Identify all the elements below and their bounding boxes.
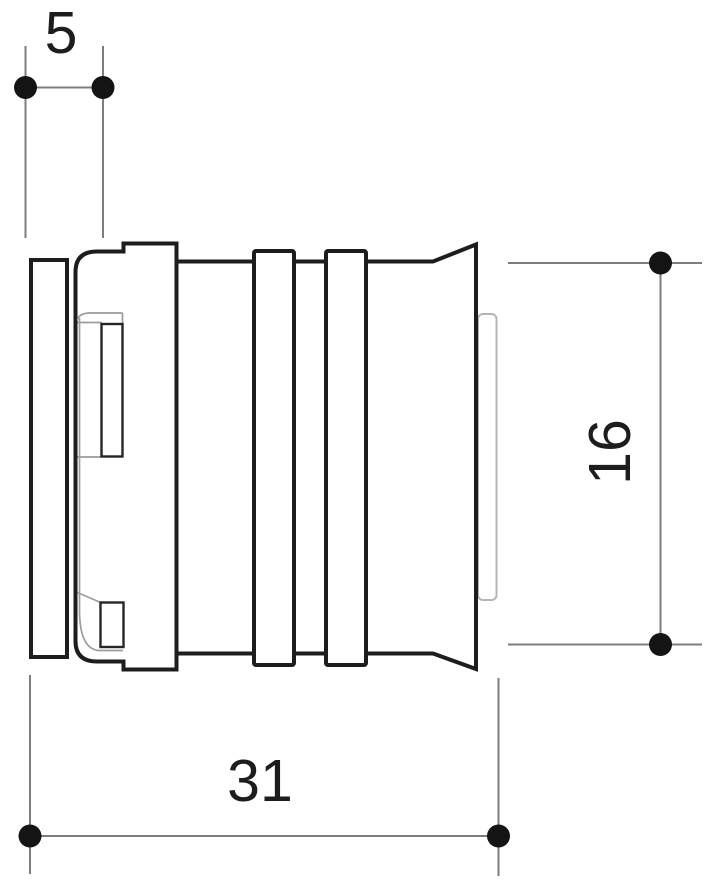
dimension-31: 31: [19, 675, 511, 876]
dimension-label-16: 16: [577, 419, 643, 485]
dimension-5: 5: [14, 0, 115, 238]
fitting-drawing: 5 16 31: [0, 0, 715, 890]
crimp-rib-1: [254, 251, 294, 665]
crimp-rib-2: [326, 251, 366, 665]
dimension-label-31: 31: [227, 748, 293, 814]
fitting-part: [31, 244, 497, 670]
dimension-dot: [14, 76, 37, 99]
dimension-16: 16: [508, 252, 702, 657]
dimension-dot: [92, 76, 115, 99]
clip-window-bottom: [101, 603, 124, 648]
clip-window-top: [102, 324, 123, 457]
dimension-dot: [649, 633, 672, 656]
dimension-dot: [19, 825, 42, 848]
end-plate: [31, 260, 67, 657]
dimension-label-5: 5: [45, 0, 78, 66]
dimension-dot: [487, 825, 510, 848]
pipe-insert-outline: [478, 314, 497, 600]
technical-drawing-canvas: 5 16 31: [0, 0, 715, 890]
dimension-dot: [649, 252, 672, 275]
